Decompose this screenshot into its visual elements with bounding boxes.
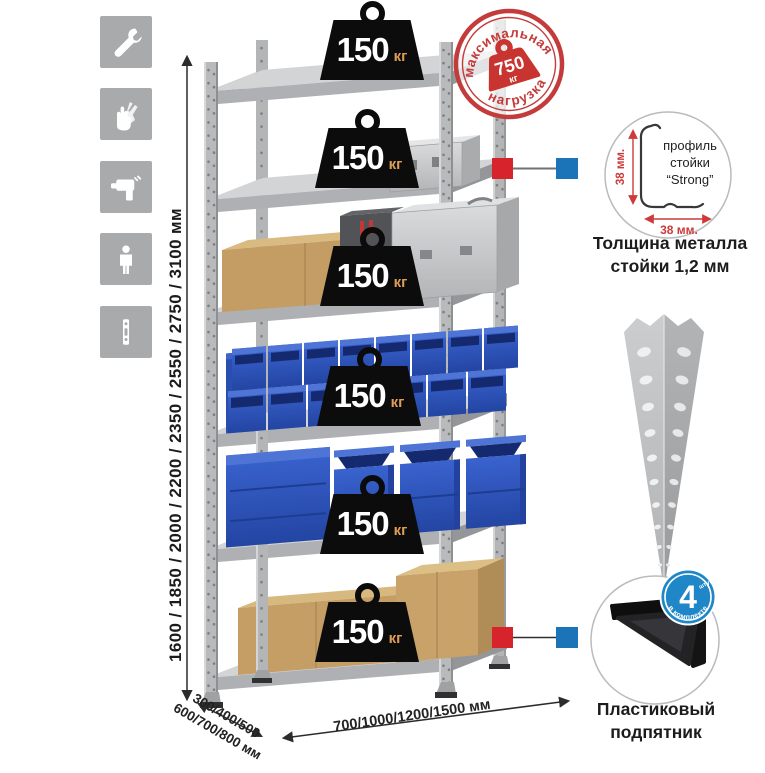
- person-icon: [100, 233, 152, 285]
- badge-unit: кг: [394, 522, 408, 539]
- foot-detail-circle: 4 штуки в комплекте: [591, 570, 719, 705]
- badge-value: 150: [337, 257, 389, 295]
- profile-strip-icon: [100, 306, 152, 358]
- foot-caption-line1: Пластиковый: [566, 698, 746, 721]
- badge-value: 150: [334, 377, 386, 415]
- badge-unit: кг: [394, 48, 408, 65]
- foot-caption-line2: подпятник: [566, 721, 746, 744]
- front-left-post: [204, 62, 218, 704]
- badge-unit: кг: [389, 630, 403, 647]
- weight-badge: 150кг: [315, 583, 419, 662]
- max-load-stamp: 750 кг максимальная нагрузка: [440, 0, 577, 133]
- badge-value: 150: [332, 139, 384, 177]
- weight-badge: 150кг: [317, 347, 421, 426]
- profile-label-1: профиль: [663, 138, 717, 153]
- angle-post-image: [624, 314, 704, 590]
- quantity-badge: 4 штуки в комплекте: [661, 570, 718, 625]
- height-dimension-label: 1600 / 1850 / 2000 / 2200 / 2350 / 2550 …: [166, 208, 186, 662]
- blue-marker-top: [556, 158, 578, 179]
- weight-badge: 150кг: [320, 227, 424, 306]
- drill-icon: [100, 161, 152, 213]
- wrench-icon: [100, 16, 152, 68]
- badge-unit: кг: [389, 156, 403, 173]
- weight-badge: 150кг: [320, 1, 424, 80]
- profile-label-3: “Strong”: [667, 172, 714, 187]
- profile-caption-line1: Толщина металла: [578, 232, 762, 255]
- profile-caption-line2: стойки 1,2 мм: [578, 255, 762, 278]
- red-marker-top: [492, 158, 513, 179]
- weight-badge: 150кг: [320, 475, 424, 554]
- profile-detail-circle: 38 мм. 38 мм. профиль стойки “Strong”: [605, 112, 731, 238]
- badge-unit: кг: [394, 274, 408, 291]
- badge-value: 150: [332, 613, 384, 651]
- weight-badge: 150кг: [315, 109, 419, 188]
- callout-top: [492, 158, 578, 179]
- gloves-icon: [100, 88, 152, 140]
- profile-label-2: стойки: [670, 155, 710, 170]
- callout-bottom: [492, 627, 578, 648]
- profile-dim-side: 38 мм.: [615, 149, 627, 185]
- quantity-value: 4: [679, 579, 697, 615]
- blue-marker-bottom: [556, 627, 578, 648]
- badge-unit: кг: [391, 394, 405, 411]
- profile-caption: Толщина металла стойки 1,2 мм: [578, 232, 762, 278]
- foot-caption: Пластиковый подпятник: [566, 698, 746, 744]
- red-marker-bottom: [492, 627, 513, 648]
- badge-value: 150: [337, 31, 389, 69]
- badge-value: 150: [337, 505, 389, 543]
